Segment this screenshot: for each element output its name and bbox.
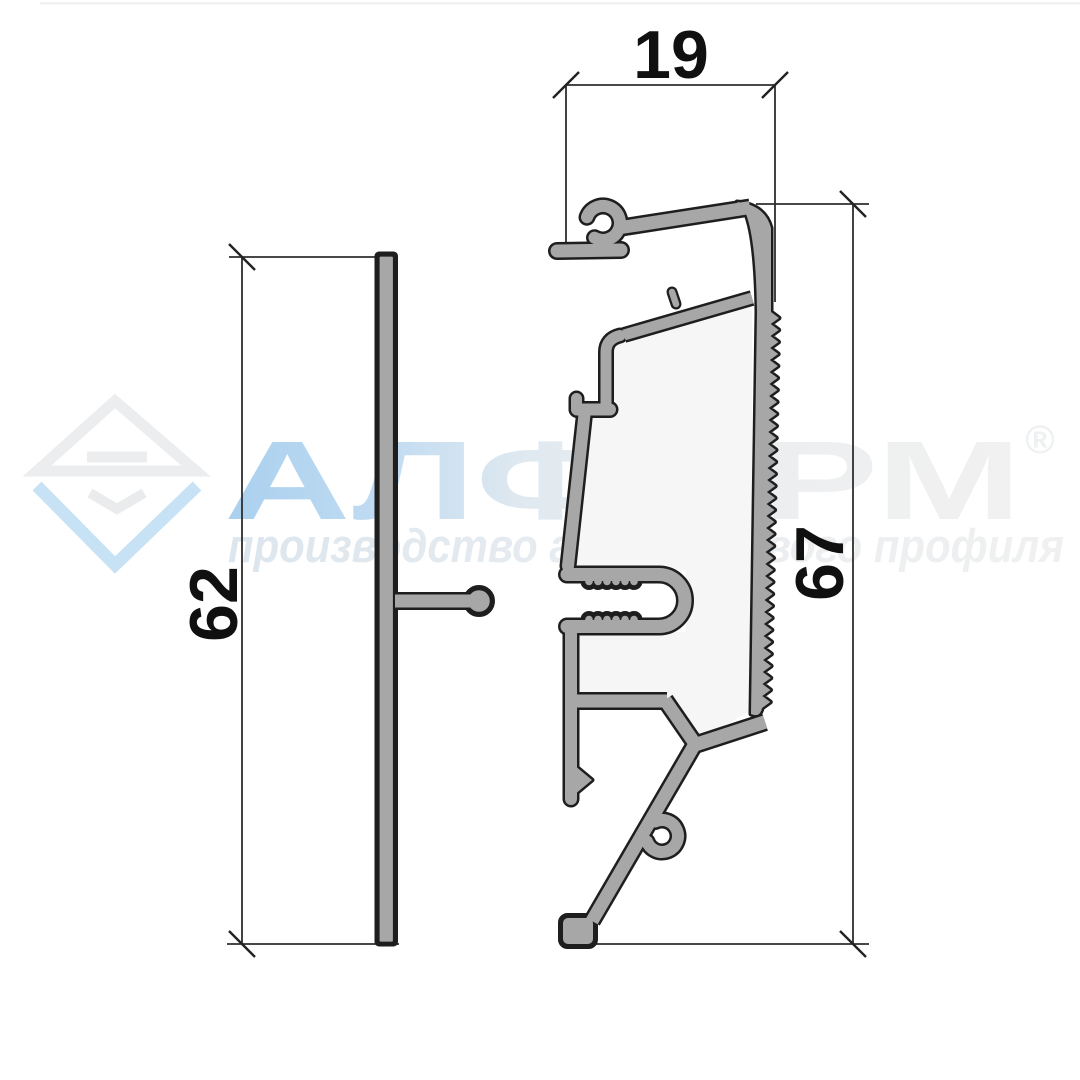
- brand-logo-diamond-icon: [37, 401, 197, 565]
- dim67-label: 67: [782, 525, 858, 601]
- logo-inner-chevron: [90, 493, 144, 509]
- registered-trademark-symbol: ®: [1025, 418, 1054, 462]
- technical-drawing: АЛФОРМ ® производство алюминиевого профи…: [0, 0, 1080, 1080]
- seg: [557, 250, 621, 251]
- dim62-label: 62: [176, 566, 252, 642]
- profiles: [377, 202, 779, 947]
- leg-foot: [563, 918, 593, 944]
- dim19-label: 19: [633, 17, 709, 93]
- flat-bar-fill: [380, 257, 393, 942]
- drawing-canvas: АЛФОРМ ® производство алюминиевого профи…: [0, 0, 1080, 1080]
- flat-bar-ball-fill: [468, 590, 490, 612]
- top-border-artifact: [40, 2, 1080, 5]
- seg: [672, 292, 676, 304]
- watermark: АЛФОРМ ® производство алюминиевого профи…: [37, 401, 1064, 572]
- logo-lower-chevron: [37, 486, 197, 565]
